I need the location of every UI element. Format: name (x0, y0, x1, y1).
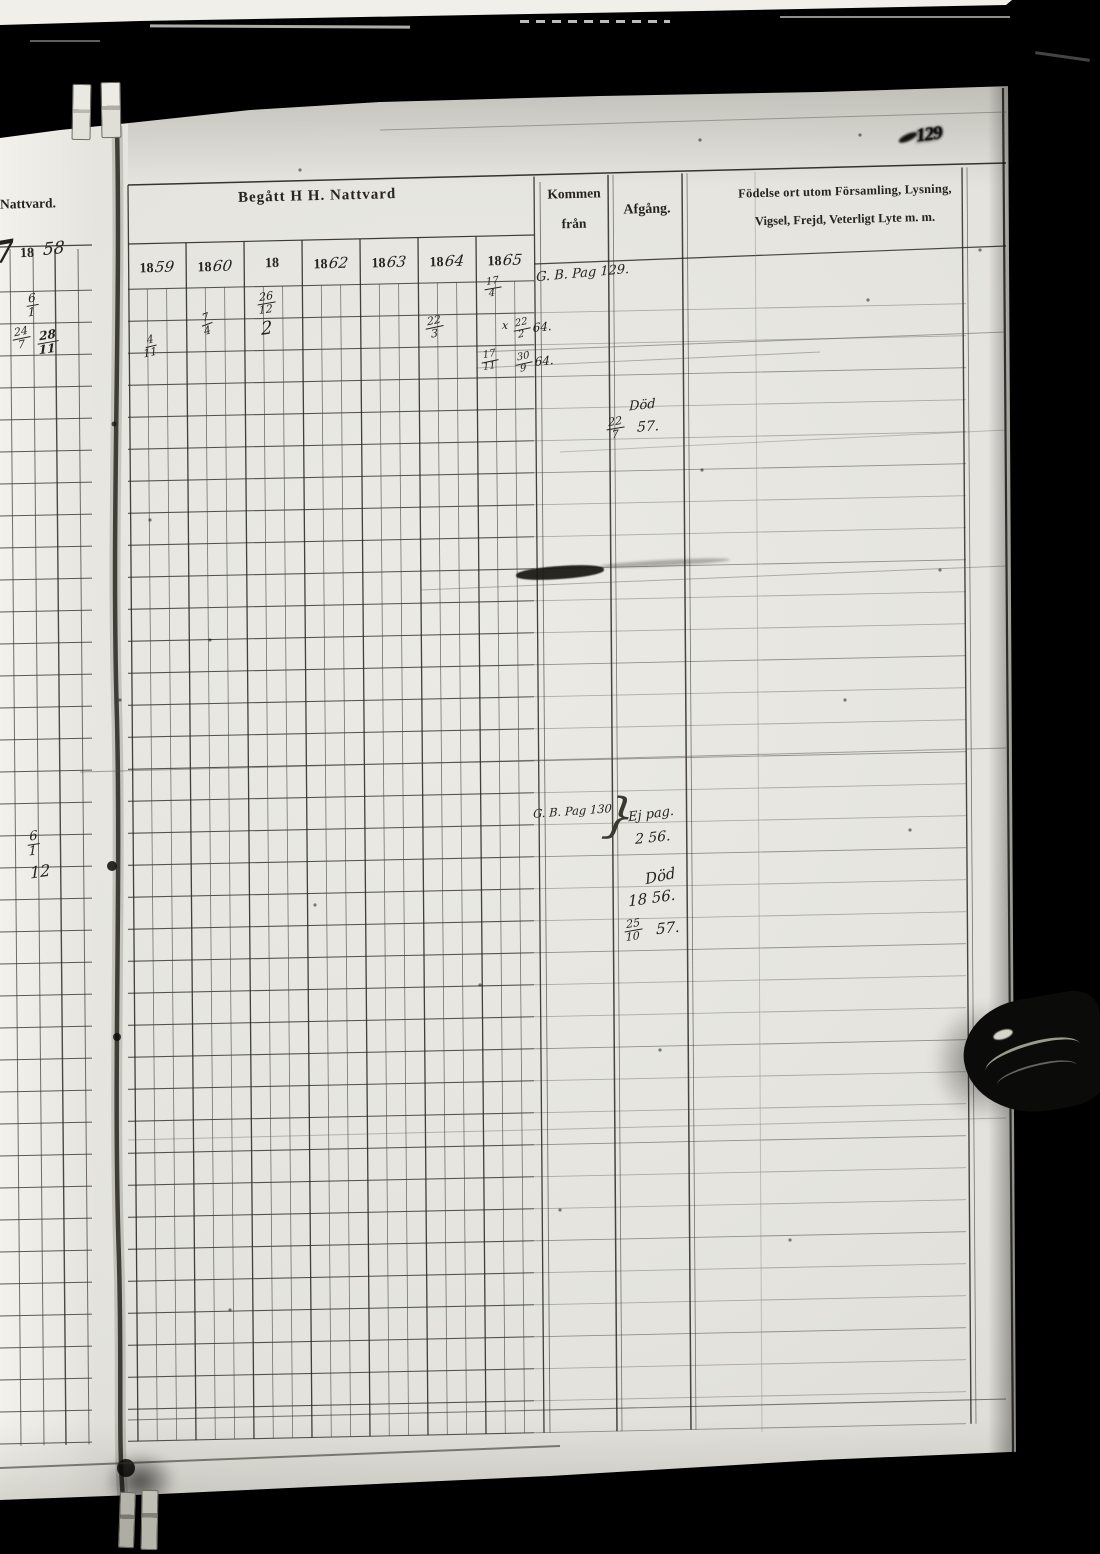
handwritten-note: Död (629, 398, 655, 414)
year-script: 65 (502, 250, 523, 269)
handwritten-date-fraction: 223 (425, 314, 443, 340)
fraction-denominator: 11 (143, 346, 158, 360)
fraction-denominator: 1 (28, 845, 37, 859)
year-cell: 1865 (479, 250, 531, 270)
handwritten-date-fraction: 174 (484, 276, 501, 299)
year-script: 59 (154, 258, 175, 277)
table-grid-lines (0, 0, 1100, 1554)
fraction-denominator: 3 (430, 327, 438, 339)
handwritten-date-fraction: 1711 (481, 349, 498, 373)
fraction-denominator: 4 (489, 289, 496, 300)
year-script: 63 (386, 253, 407, 272)
book-clasp-top-left (72, 84, 92, 140)
book-clasp-top-right (101, 82, 122, 138)
year-printed: 18 (429, 255, 443, 270)
year-script: 60 (212, 256, 233, 275)
fraction-denominator: 11 (483, 361, 496, 373)
handwritten-date-fraction: 30964. (515, 349, 554, 375)
fraction-denominator: 2 (518, 330, 525, 341)
column-header-kommen-line1: Kommen (540, 185, 608, 203)
fraction-denominator: 1 (28, 306, 36, 319)
column-header-kommen-line2: från (540, 215, 608, 233)
handwritten-note: 2 (261, 319, 273, 339)
year-printed: 18 (139, 261, 153, 276)
year-printed: 18 (313, 257, 327, 272)
book-clasp-bottom-left (118, 1492, 136, 1549)
column-header-afgang: Afgång. (612, 201, 682, 219)
handwritten-date-fraction: 411 (143, 333, 158, 359)
fraction-denominator: 10 (626, 930, 640, 943)
fraction-year-suffix: 64. (535, 354, 554, 368)
handwritten-date-fraction: 61 (26, 292, 39, 319)
handwritten-note: x (501, 320, 508, 331)
year-cell: 1860 (189, 256, 241, 276)
left-fragment-header: Nattvard. (0, 195, 56, 212)
fraction-denominator: 4 (203, 324, 212, 337)
handwritten-date-fraction: 61 (26, 830, 40, 859)
left-fragment-year-script: 58 (43, 240, 65, 259)
year-cell: 1862 (305, 254, 357, 274)
fraction-denominator: 11 (39, 342, 56, 356)
scanned-ledger-page: Begått H H. Nattvard Kommen från Afgång.… (0, 0, 1100, 1554)
handwritten-note: 57. (637, 419, 660, 435)
handwritten-note: 7 (0, 236, 16, 270)
left-fragment-year-printed: 18 (20, 246, 34, 262)
handwritten-date-fraction: 2612 (257, 290, 276, 315)
handwritten-note: 2 56. (635, 829, 670, 847)
year-cell: 1859 (131, 257, 183, 277)
year-printed: 18 (197, 260, 211, 275)
year-cell: 1863 (363, 252, 415, 272)
fraction-denominator: 9 (520, 364, 527, 375)
year-script: 62 (328, 254, 349, 273)
fraction-denominator: 12 (259, 303, 273, 316)
year-printed: 18 (371, 256, 385, 271)
clasp-shadow (104, 1452, 176, 1510)
year-cell: 1864 (421, 251, 473, 271)
year-script: 64 (444, 251, 465, 270)
book-clasp-bottom-right (140, 1490, 158, 1550)
page-number: 129 (915, 123, 943, 148)
book-clasp-fitting (938, 992, 1100, 1134)
year-printed: 18 (265, 255, 279, 270)
year-cell: 18 (247, 255, 299, 272)
handwritten-note: 12 (30, 863, 51, 882)
fraction-year-suffix: 64. (533, 320, 552, 334)
year-printed: 18 (487, 254, 501, 269)
fraction-denominator: 7 (611, 429, 618, 441)
fraction-denominator: 7 (17, 338, 25, 350)
handwritten-date-fraction: 22264. (513, 315, 552, 341)
handwritten-date-fraction: 247 (12, 325, 30, 351)
handwritten-note: 57. (656, 920, 680, 938)
handwritten-date-fraction: 227 (606, 415, 625, 440)
handwritten-date-fraction: 2510 (624, 917, 643, 942)
handwritten-date-fraction: 2811 (37, 328, 59, 356)
